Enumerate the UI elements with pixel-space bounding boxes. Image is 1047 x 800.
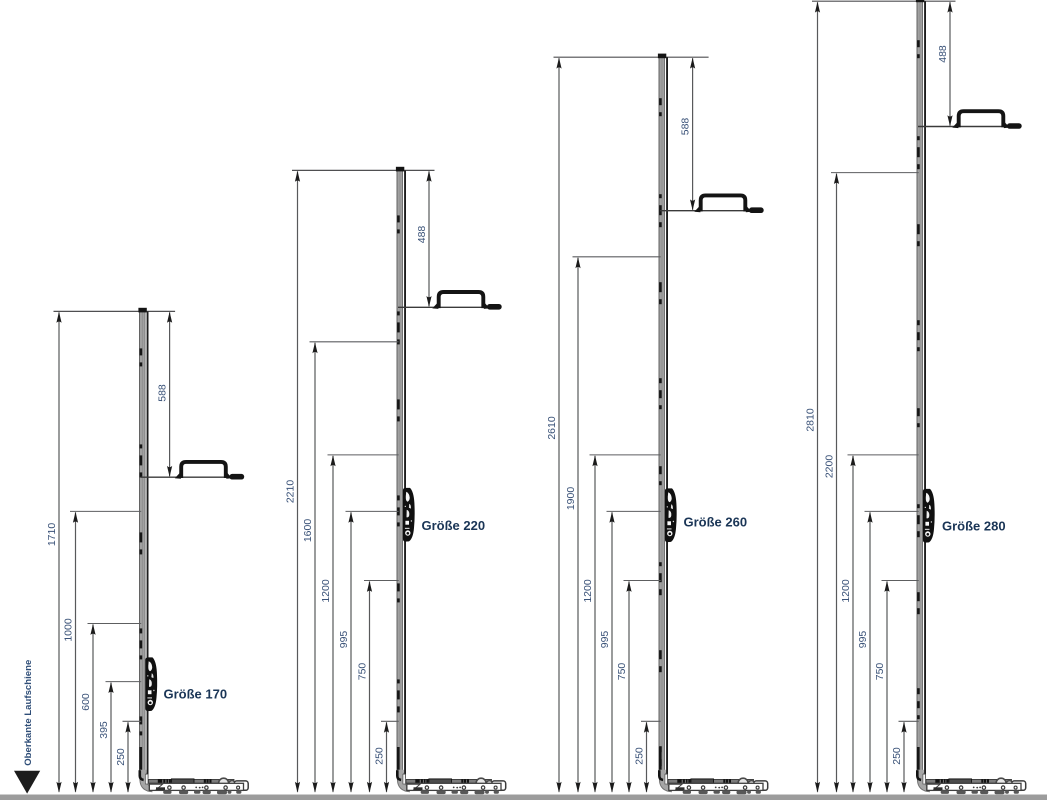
svg-text:600: 600: [80, 693, 92, 711]
svg-text:1900: 1900: [565, 487, 577, 511]
svg-text:995: 995: [857, 631, 869, 649]
svg-text:995: 995: [338, 631, 350, 649]
svg-text:250: 250: [373, 747, 385, 765]
svg-text:1600: 1600: [302, 519, 314, 543]
svg-text:Größe 260: Größe 260: [684, 515, 748, 530]
svg-text:588: 588: [679, 118, 691, 136]
svg-text:1000: 1000: [62, 618, 74, 642]
svg-text:2610: 2610: [546, 416, 558, 440]
svg-text:250: 250: [115, 748, 127, 766]
svg-text:750: 750: [616, 663, 628, 681]
svg-text:250: 250: [891, 747, 903, 765]
svg-text:2210: 2210: [284, 480, 296, 504]
svg-text:395: 395: [98, 721, 110, 739]
svg-text:2200: 2200: [823, 455, 835, 479]
svg-text:250: 250: [633, 747, 645, 765]
svg-text:1200: 1200: [840, 579, 852, 603]
svg-text:750: 750: [874, 663, 886, 681]
svg-text:588: 588: [156, 384, 168, 402]
svg-text:Größe 280: Größe 280: [942, 519, 1006, 534]
svg-text:488: 488: [937, 45, 949, 63]
svg-text:995: 995: [599, 631, 611, 649]
svg-text:1200: 1200: [320, 579, 332, 603]
svg-text:2810: 2810: [804, 408, 816, 432]
svg-text:750: 750: [356, 663, 368, 681]
svg-text:488: 488: [416, 226, 428, 244]
svg-text:Größe 170: Größe 170: [164, 687, 228, 702]
svg-text:1200: 1200: [582, 579, 594, 603]
svg-text:Oberkante Laufschiene: Oberkante Laufschiene: [23, 660, 34, 766]
svg-text:Größe 220: Größe 220: [422, 518, 486, 533]
svg-text:1710: 1710: [46, 523, 58, 547]
